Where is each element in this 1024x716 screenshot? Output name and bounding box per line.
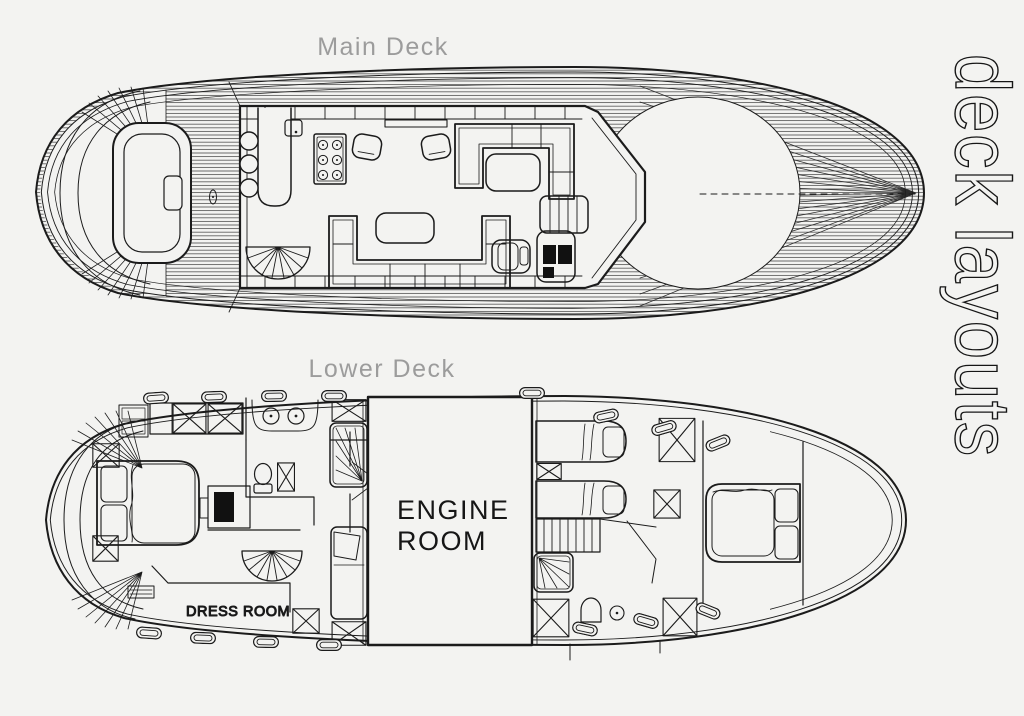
galley-stove [314, 134, 346, 184]
engine-room: ENGINE ROOM [363, 397, 537, 645]
lower-deck-title: Lower Deck [309, 355, 456, 383]
side-title: deck layouts [939, 54, 1024, 458]
side-title-text: deck layouts [939, 54, 1024, 458]
main-deck-title: Main Deck [317, 33, 449, 61]
engine-room-label-line2: ROOM [397, 526, 487, 556]
engine-room-label-line1: ENGINE [397, 495, 510, 525]
bow-seating [113, 123, 191, 263]
deck-layouts-page: Main Deck [0, 0, 1024, 716]
main-deck-plan: Main Deck [36, 33, 924, 319]
lower-deck-plan: Lower Deck ENGINE ROOM [46, 355, 906, 660]
bar-stools [240, 132, 258, 197]
dress-room-label: DRESS ROOM [186, 604, 290, 620]
